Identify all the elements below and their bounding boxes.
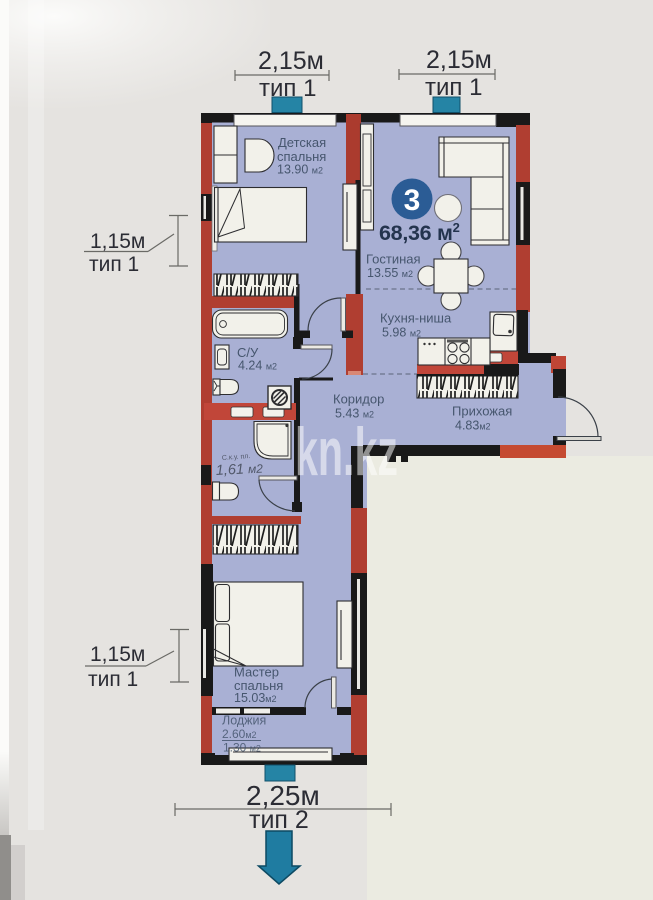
svg-text:2,15м: 2,15м (426, 46, 492, 74)
svg-text:Кухня-ниша: Кухня-ниша (380, 311, 452, 326)
svg-text:kn.kz: kn.kz (295, 414, 398, 490)
svg-text:1.30 м2: 1.30 м2 (223, 741, 261, 755)
svg-text:13.55 м2: 13.55 м2 (367, 266, 413, 280)
svg-text:4.24 м2: 4.24 м2 (238, 359, 277, 373)
svg-text:Гостиная: Гостиная (366, 252, 421, 267)
svg-text:тип 1: тип 1 (89, 253, 139, 276)
svg-text:Прихожая: Прихожая (452, 404, 512, 419)
svg-text:1,15м: 1,15м (90, 230, 145, 253)
svg-text:15.03м2: 15.03м2 (234, 691, 276, 705)
svg-text:Детская: Детская (278, 135, 326, 150)
svg-text:2,15м: 2,15м (258, 47, 324, 75)
svg-text:1,15м: 1,15м (90, 643, 145, 666)
svg-text:Лоджия: Лоджия (222, 714, 266, 728)
svg-text:5.98 м2: 5.98 м2 (382, 326, 421, 340)
svg-text:68,36 м2: 68,36 м2 (379, 220, 460, 245)
svg-text:4.83м2: 4.83м2 (455, 419, 491, 433)
svg-text:тип 1: тип 1 (425, 74, 482, 101)
svg-text:тип 1: тип 1 (88, 668, 138, 691)
svg-text:3: 3 (404, 184, 421, 217)
svg-text:Коридор: Коридор (333, 392, 384, 407)
svg-text:тип 1: тип 1 (259, 75, 316, 102)
svg-text:тип 2: тип 2 (249, 806, 309, 834)
svg-text:2.60м2: 2.60м2 (222, 727, 257, 741)
svg-text:13.90 м2: 13.90 м2 (277, 163, 323, 177)
